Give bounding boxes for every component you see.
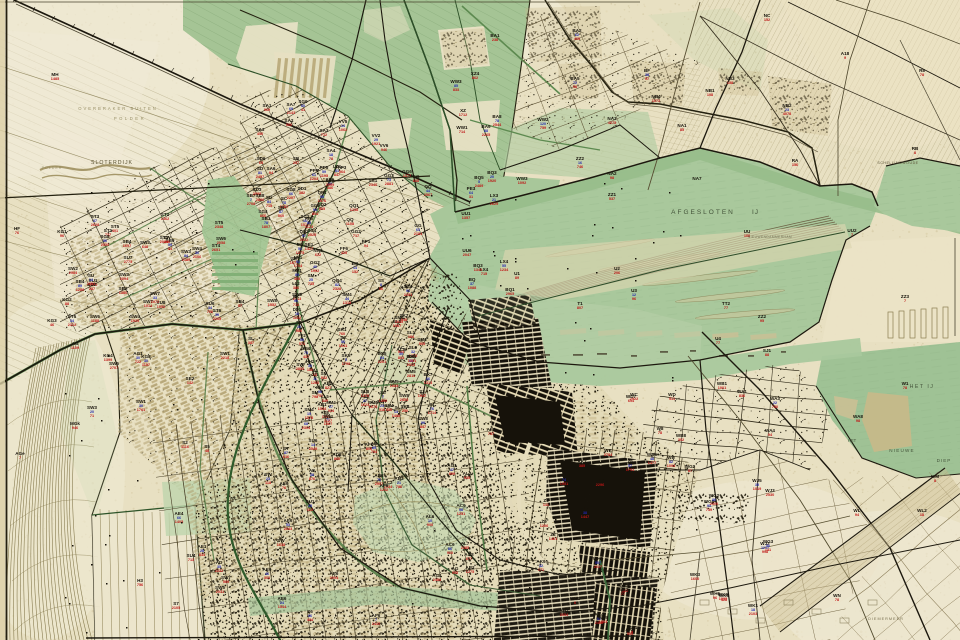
svg-text:1534: 1534 [318, 407, 327, 411]
svg-text:96: 96 [632, 297, 636, 301]
svg-text:715: 715 [266, 204, 272, 208]
svg-text:HET: HET [848, 438, 857, 443]
svg-text:806: 806 [366, 447, 372, 451]
svg-text:142: 142 [187, 381, 193, 385]
svg-text:57: 57 [238, 304, 242, 308]
svg-text:78: 78 [835, 598, 839, 602]
svg-text:77: 77 [716, 341, 720, 345]
svg-text:484: 484 [307, 618, 314, 622]
svg-text:1188: 1188 [91, 319, 99, 323]
svg-text:2457: 2457 [256, 175, 264, 179]
svg-text:694: 694 [628, 399, 635, 403]
svg-text:905: 905 [319, 207, 325, 211]
svg-text:803: 803 [398, 356, 404, 360]
svg-text:505: 505 [419, 342, 425, 346]
svg-text:1289: 1289 [76, 288, 84, 292]
svg-text:713: 713 [188, 558, 194, 562]
svg-text:911: 911 [669, 397, 675, 401]
svg-text:2047: 2047 [463, 253, 471, 257]
svg-text:1051: 1051 [408, 359, 416, 363]
svg-text:2055: 2055 [101, 243, 109, 247]
svg-text:847: 847 [420, 425, 426, 429]
svg-text:AFGESLOTEN: AFGESLOTEN [671, 209, 735, 216]
svg-text:8: 8 [914, 151, 916, 155]
svg-text:2013: 2013 [407, 363, 415, 367]
svg-text:688: 688 [413, 179, 419, 183]
svg-text:6: 6 [574, 601, 576, 605]
svg-text:757: 757 [488, 432, 494, 436]
svg-text:386: 386 [293, 286, 299, 290]
svg-text:1001: 1001 [718, 386, 726, 390]
svg-text:1349: 1349 [474, 268, 482, 272]
svg-text:2628: 2628 [91, 223, 99, 227]
svg-text:1683: 1683 [390, 384, 398, 388]
svg-text:89: 89 [515, 276, 519, 280]
svg-text:46: 46 [50, 323, 54, 327]
svg-text:1362: 1362 [161, 217, 169, 221]
svg-text:1390: 1390 [379, 399, 387, 403]
svg-text:DIEMERMEER: DIEMERMEER [868, 617, 904, 621]
svg-text:238: 238 [492, 38, 498, 42]
svg-text:2017: 2017 [594, 565, 602, 569]
svg-text:87: 87 [688, 469, 692, 473]
svg-text:1203: 1203 [310, 177, 318, 181]
svg-text:2201: 2201 [378, 360, 386, 364]
svg-text:833: 833 [453, 88, 459, 92]
svg-text:1380: 1380 [119, 291, 127, 295]
svg-text:2189: 2189 [182, 258, 190, 262]
svg-text:1697: 1697 [123, 244, 131, 248]
svg-text:836: 836 [739, 394, 745, 398]
svg-text:1714: 1714 [428, 411, 437, 415]
svg-text:1488: 1488 [392, 414, 400, 418]
svg-text:717: 717 [353, 234, 359, 238]
svg-text:735: 735 [308, 282, 314, 286]
svg-text:152: 152 [764, 18, 770, 22]
svg-text:108: 108 [707, 93, 713, 97]
svg-text:385: 385 [579, 464, 585, 468]
svg-text:98: 98 [610, 176, 614, 180]
svg-text:564: 564 [339, 170, 346, 174]
svg-text:616: 616 [283, 455, 289, 459]
svg-text:1645: 1645 [395, 320, 403, 324]
svg-text:1157: 1157 [142, 363, 150, 367]
svg-text:257: 257 [293, 161, 299, 165]
svg-text:156: 156 [792, 163, 798, 167]
svg-text:7: 7 [19, 456, 21, 460]
svg-text:622: 622 [315, 253, 321, 257]
svg-text:1992: 1992 [311, 269, 319, 273]
svg-text:2784: 2784 [604, 453, 613, 457]
svg-text:2385: 2385 [461, 546, 469, 550]
svg-text:118: 118 [265, 481, 271, 485]
svg-text:1019: 1019 [753, 487, 761, 491]
svg-text:4075: 4075 [608, 121, 616, 125]
svg-text:2232: 2232 [215, 569, 223, 573]
svg-text:77: 77 [724, 306, 728, 310]
svg-text:2304: 2304 [302, 426, 311, 430]
svg-text:2965: 2965 [506, 292, 514, 296]
svg-text:1313: 1313 [424, 381, 432, 385]
svg-text:1947: 1947 [418, 394, 426, 398]
svg-text:1972: 1972 [151, 300, 159, 304]
svg-text:1234: 1234 [500, 268, 509, 272]
svg-text:955: 955 [452, 571, 458, 575]
svg-text:516: 516 [379, 408, 385, 412]
svg-text:1376: 1376 [361, 394, 369, 398]
svg-text:1552: 1552 [268, 303, 276, 307]
svg-text:2103: 2103 [749, 612, 757, 616]
svg-text:1251: 1251 [457, 512, 465, 516]
svg-text:1544: 1544 [278, 605, 287, 609]
svg-text:2296: 2296 [596, 483, 604, 487]
svg-text:1108: 1108 [346, 222, 354, 226]
svg-text:589: 589 [223, 580, 229, 584]
svg-text:1275: 1275 [466, 570, 474, 574]
svg-text:1987: 1987 [393, 324, 401, 328]
svg-text:1262: 1262 [380, 488, 388, 492]
svg-text:2852: 2852 [296, 367, 304, 371]
svg-text:1712: 1712 [459, 113, 467, 117]
svg-text:862: 862 [472, 76, 478, 80]
svg-text:780: 780 [772, 405, 778, 409]
svg-text:95: 95 [760, 319, 764, 323]
svg-text:141: 141 [765, 548, 771, 552]
svg-text:425: 425 [341, 251, 347, 255]
svg-text:1427: 1427 [305, 247, 313, 251]
svg-text:2094: 2094 [120, 277, 129, 281]
svg-text:827: 827 [325, 386, 331, 390]
svg-text:96: 96 [713, 596, 717, 600]
svg-text:2094: 2094 [330, 576, 339, 580]
svg-text:935: 935 [464, 476, 470, 480]
svg-text:7: 7 [904, 299, 906, 303]
svg-text:POLDER: POLDER [42, 166, 63, 170]
svg-text:2907: 2907 [375, 482, 383, 486]
svg-text:OVERBRAKER BUITEN: OVERBRAKER BUITEN [78, 106, 158, 111]
svg-text:41: 41 [301, 108, 305, 112]
svg-text:2251: 2251 [404, 293, 412, 297]
svg-text:2218: 2218 [221, 356, 229, 360]
svg-text:1485: 1485 [51, 77, 59, 81]
svg-text:2707: 2707 [110, 366, 118, 370]
svg-text:1072: 1072 [652, 99, 660, 103]
svg-text:NIEUWENDAMMERHAM: NIEUWENDAMMERHAM [748, 235, 792, 239]
svg-text:760: 760 [339, 332, 345, 336]
svg-text:9: 9 [844, 56, 846, 60]
svg-text:798: 798 [312, 395, 318, 399]
svg-text:450: 450 [257, 132, 263, 136]
svg-text:739: 739 [706, 508, 712, 512]
svg-text:1679: 1679 [369, 405, 377, 409]
svg-text:48: 48 [205, 449, 209, 453]
svg-text:1761: 1761 [137, 408, 145, 412]
svg-text:2143: 2143 [287, 111, 295, 115]
svg-text:560: 560 [278, 214, 284, 218]
svg-text:1477: 1477 [648, 461, 656, 465]
svg-text:2811: 2811 [407, 374, 415, 378]
svg-text:759: 759 [540, 126, 546, 130]
svg-text:2881: 2881 [385, 182, 393, 186]
svg-text:1807: 1807 [262, 225, 270, 229]
svg-text:96: 96 [60, 234, 64, 238]
svg-text:4078: 4078 [783, 112, 791, 116]
svg-text:2525: 2525 [308, 233, 316, 237]
svg-text:2340: 2340 [369, 183, 377, 187]
svg-text:807: 807 [577, 306, 583, 310]
svg-text:756: 756 [137, 583, 143, 587]
svg-text:2851: 2851 [87, 282, 95, 286]
svg-text:2106: 2106 [193, 255, 201, 259]
svg-text:HET IJ: HET IJ [910, 384, 935, 390]
svg-text:1088: 1088 [468, 286, 476, 290]
svg-text:1447: 1447 [581, 515, 589, 519]
svg-text:2629: 2629 [490, 202, 498, 206]
svg-text:586: 586 [286, 123, 292, 127]
svg-text:1062: 1062 [339, 128, 347, 132]
svg-text:78: 78 [903, 386, 907, 390]
svg-text:IJ: IJ [752, 209, 759, 216]
svg-text:1600: 1600 [691, 577, 699, 581]
svg-text:78: 78 [658, 431, 662, 435]
svg-text:302: 302 [678, 438, 684, 442]
svg-text:1318: 1318 [343, 301, 351, 305]
svg-text:866: 866 [260, 214, 266, 218]
svg-text:1109: 1109 [71, 346, 79, 350]
svg-text:2651: 2651 [212, 248, 220, 252]
svg-text:158: 158 [727, 81, 733, 85]
svg-text:2567: 2567 [424, 193, 432, 197]
svg-text:786: 786 [396, 485, 402, 489]
svg-text:946: 946 [72, 426, 78, 430]
svg-text:18: 18 [920, 513, 924, 517]
svg-text:1377: 1377 [403, 174, 411, 178]
svg-text:163: 163 [307, 508, 313, 512]
svg-text:56: 56 [379, 287, 383, 291]
svg-text:2054: 2054 [560, 613, 569, 617]
svg-text:171: 171 [538, 568, 544, 572]
svg-text:1623: 1623 [361, 403, 369, 407]
svg-text:2544: 2544 [493, 123, 502, 127]
svg-text:900: 900 [427, 523, 433, 527]
svg-text:287: 287 [89, 287, 95, 291]
svg-text:98: 98 [856, 419, 860, 423]
svg-text:1116: 1116 [181, 445, 189, 449]
svg-text:1799: 1799 [342, 362, 350, 366]
svg-text:648: 648 [142, 245, 148, 249]
svg-text:900: 900 [447, 551, 453, 555]
svg-text:2043: 2043 [284, 527, 292, 531]
svg-text:405: 405 [574, 37, 580, 41]
svg-text:SCHELLINGWOUDE: SCHELLINGWOUDE [877, 161, 918, 165]
svg-text:2445: 2445 [372, 622, 380, 626]
svg-text:401: 401 [112, 229, 118, 233]
svg-text:1951: 1951 [560, 482, 568, 486]
svg-text:2207: 2207 [287, 196, 295, 200]
svg-text:712: 712 [321, 133, 327, 137]
svg-text:2265: 2265 [482, 133, 490, 137]
svg-text:78: 78 [920, 73, 924, 77]
svg-text:NA7: NA7 [692, 176, 702, 181]
svg-text:1014: 1014 [144, 304, 153, 308]
svg-text:76: 76 [282, 486, 286, 490]
svg-text:899: 899 [449, 472, 455, 476]
svg-text:2348: 2348 [215, 225, 223, 229]
svg-text:715: 715 [481, 272, 487, 276]
svg-text:2708: 2708 [247, 202, 255, 206]
svg-text:876: 876 [309, 477, 315, 481]
svg-text:73: 73 [329, 157, 333, 161]
svg-text:555: 555 [386, 408, 392, 412]
svg-text:2184: 2184 [414, 232, 423, 236]
svg-text:1883: 1883 [599, 620, 607, 624]
svg-text:537: 537 [609, 197, 615, 201]
svg-text:2300: 2300 [710, 502, 718, 506]
svg-text:71: 71 [90, 414, 94, 418]
svg-text:250: 250 [402, 409, 408, 413]
svg-text:2549: 2549 [309, 447, 317, 451]
svg-text:2031: 2031 [216, 590, 224, 594]
svg-text:SLOTERDIJK: SLOTERDIJK [91, 160, 133, 166]
svg-text:85: 85 [680, 128, 684, 132]
svg-text:2328: 2328 [333, 287, 341, 291]
svg-text:141: 141 [543, 503, 549, 507]
svg-text:POLDER: POLDER [114, 116, 146, 121]
svg-text:2489: 2489 [475, 184, 483, 188]
svg-text:428: 428 [721, 598, 727, 602]
svg-text:722: 722 [135, 360, 141, 364]
svg-text:97: 97 [645, 77, 649, 81]
svg-text:1206: 1206 [540, 524, 548, 528]
svg-text:77: 77 [621, 592, 625, 596]
svg-text:946: 946 [381, 148, 387, 152]
svg-text:2312: 2312 [68, 323, 76, 327]
svg-text:969: 969 [264, 108, 270, 112]
svg-text:76: 76 [15, 231, 19, 235]
svg-text:1638: 1638 [277, 543, 285, 547]
svg-text:NIEUWE: NIEUWE [889, 448, 915, 453]
svg-text:1052: 1052 [157, 305, 165, 309]
svg-text:1092: 1092 [518, 181, 526, 185]
svg-text:1641: 1641 [339, 344, 347, 348]
svg-text:2984: 2984 [69, 271, 78, 275]
svg-text:559: 559 [627, 632, 633, 636]
svg-text:1127: 1127 [324, 419, 332, 423]
svg-text:2353: 2353 [400, 398, 408, 402]
svg-text:2105: 2105 [172, 606, 180, 610]
svg-text:860: 860 [334, 457, 340, 461]
svg-text:1357: 1357 [462, 216, 470, 220]
svg-text:932: 932 [321, 376, 327, 380]
svg-text:2205: 2205 [213, 317, 221, 321]
svg-text:2866: 2866 [256, 198, 264, 202]
svg-text:677: 677 [466, 557, 472, 561]
svg-text:714: 714 [459, 130, 466, 134]
svg-text:246: 246 [164, 240, 170, 244]
svg-text:1195: 1195 [320, 174, 328, 178]
svg-text:65: 65 [259, 161, 263, 165]
svg-text:382: 382 [299, 191, 305, 195]
svg-text:303: 303 [264, 576, 270, 580]
svg-text:1925: 1925 [131, 319, 139, 323]
svg-text:31: 31 [469, 195, 473, 199]
svg-text:2488: 2488 [433, 578, 441, 582]
svg-text:98: 98 [573, 85, 577, 89]
svg-text:834: 834 [199, 553, 206, 557]
svg-text:88: 88 [765, 353, 769, 357]
svg-text:7: 7 [851, 233, 853, 237]
svg-text:DIEP: DIEP [937, 458, 952, 463]
svg-text:746: 746 [577, 165, 583, 169]
svg-text:8: 8 [934, 479, 936, 483]
svg-text:2530: 2530 [766, 493, 774, 497]
svg-text:1238: 1238 [350, 208, 358, 212]
svg-text:152: 152 [352, 270, 358, 274]
svg-text:1578: 1578 [305, 416, 313, 420]
svg-text:88: 88 [65, 302, 69, 306]
svg-text:184: 184 [408, 335, 415, 339]
svg-text:387: 387 [248, 341, 254, 345]
svg-text:12: 12 [313, 373, 317, 377]
svg-text:1461: 1461 [549, 537, 557, 541]
svg-text:2775: 2775 [124, 260, 132, 264]
svg-text:1093: 1093 [667, 464, 675, 468]
svg-text:1920: 1920 [488, 179, 496, 183]
svg-text:206: 206 [614, 271, 620, 275]
svg-text:2999: 2999 [326, 183, 334, 187]
